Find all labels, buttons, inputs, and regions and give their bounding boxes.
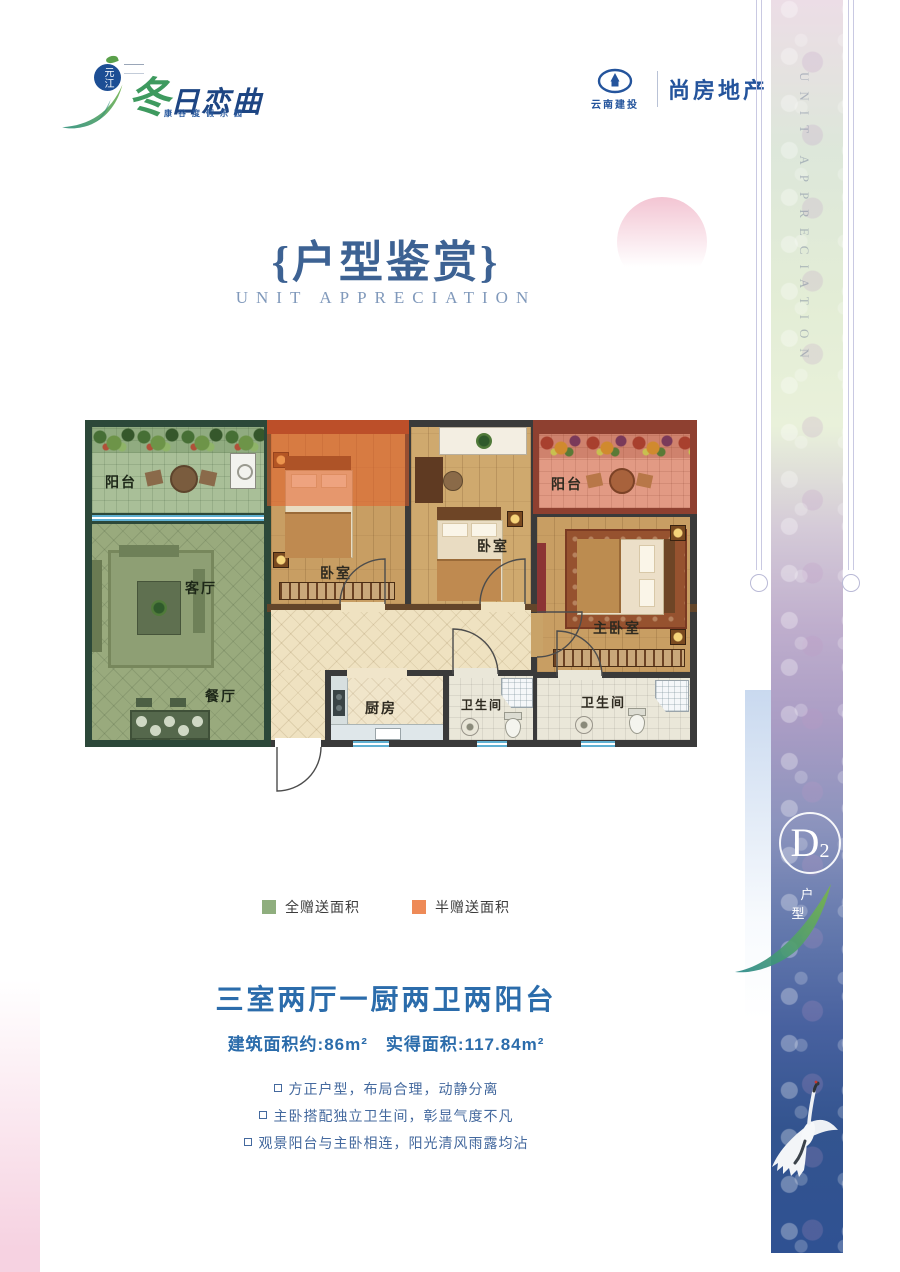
page-subtitle: UNIT APPRECIATION <box>0 288 772 308</box>
toilet <box>505 718 521 738</box>
kitchen-opening <box>347 668 407 678</box>
pink-corner-gradient <box>0 980 40 1272</box>
feature-text: 方正户型，布局合理，动静分离 <box>289 1081 499 1097</box>
lamp-icon <box>670 525 686 541</box>
logo-tagline: 康谷度假乐园 <box>164 108 248 119</box>
balcony-chair <box>145 469 164 486</box>
unit-area-line: 建筑面积约:86m² 实得面积:117.84m² <box>0 1030 772 1055</box>
bed-blanket <box>285 512 351 558</box>
room-balcony-right <box>539 434 690 508</box>
crane-icon <box>771 1078 843 1210</box>
door-opening <box>481 602 525 612</box>
bed-blanket <box>437 559 501 601</box>
label-bath2: 卫生间 <box>581 692 626 711</box>
plan-legend: 全赠送面积 半赠送面积 <box>0 897 772 917</box>
half-gift-swatch-icon <box>412 900 426 914</box>
label-kitchen: 厨房 <box>365 698 397 718</box>
sink-counter <box>331 724 443 740</box>
entry-hall <box>271 670 325 740</box>
window-kitchen <box>353 741 389 747</box>
label-bath1: 卫生间 <box>461 696 503 713</box>
dining-table <box>130 710 210 740</box>
washer <box>230 453 256 489</box>
bed-blanket <box>577 539 621 613</box>
room-living-dining <box>92 524 264 740</box>
half-gift-label: 半赠送面积 <box>435 897 510 917</box>
developer-emblem-icon <box>596 68 634 94</box>
room-bedroom2 <box>411 427 531 604</box>
wardrobe <box>553 649 685 667</box>
balcony-table <box>170 465 198 493</box>
flower-strip-icon <box>539 434 690 458</box>
burner-icon <box>336 694 342 700</box>
feature-text: 观景阳台与主卧相连，阳光清风雨露均沾 <box>259 1135 529 1151</box>
basin <box>461 718 479 736</box>
tv-cabinet <box>92 560 102 652</box>
legend-full-gift: 全赠送面积 <box>262 897 360 917</box>
shower <box>501 678 533 708</box>
full-gift-swatch-icon <box>262 900 276 914</box>
developer-emblem-block: 云南建投 <box>583 68 647 111</box>
full-gift-label: 全赠送面积 <box>285 897 360 917</box>
plate <box>164 716 175 727</box>
door-opening <box>454 668 498 678</box>
planter-strip-icon <box>92 427 264 453</box>
balcony-chair <box>636 473 653 489</box>
desk-chair <box>443 471 463 491</box>
washer-door <box>237 464 253 480</box>
dining-chair <box>136 698 152 707</box>
desk <box>415 457 443 503</box>
entry-opening <box>275 738 321 748</box>
page-title: {户型鉴赏} <box>0 226 772 290</box>
developer-org-name: 云南建投 <box>591 96 639 111</box>
living-rug <box>108 550 214 668</box>
bed-headboard <box>437 507 501 520</box>
developer-logos: 云南建投 尚房地产 <box>583 66 768 112</box>
brand-logo: 元江 冬日恋曲 康谷度假乐园 <box>72 52 262 130</box>
built-area: 建筑面积约:86m² <box>228 1030 368 1055</box>
bay-window <box>439 427 527 455</box>
burner-icon <box>336 705 342 711</box>
side-guide-dot-right <box>842 574 860 592</box>
balcony-table <box>609 468 635 494</box>
door-opening <box>531 613 543 657</box>
unit-type-label: 户型 <box>771 884 843 922</box>
window-bath2 <box>581 741 615 747</box>
unit-code-number: 2 <box>819 840 829 863</box>
floorplan-walls: 阳台 客厅 餐厅 卧室 卧室 阳台 主卧室 厨房 卫生间 卫生间 <box>85 420 697 747</box>
pillow <box>471 523 497 537</box>
feature-item: 观景阳台与主卧相连，阳光清风雨露均沾 <box>0 1130 772 1157</box>
label-balcony-left: 阳台 <box>105 472 137 492</box>
floorplan: 阳台 客厅 餐厅 卧室 卧室 阳台 主卧室 厨房 卫生间 卫生间 <box>85 420 697 795</box>
sofa <box>119 545 179 557</box>
pillow <box>639 579 655 607</box>
balcony-chair <box>586 473 603 489</box>
door-opening <box>558 670 602 680</box>
hallway <box>271 610 531 670</box>
lamp-icon <box>507 511 523 527</box>
lamp-icon <box>670 629 686 645</box>
developer-brand-name: 尚房地产 <box>668 73 768 105</box>
legend-half-gift: 半赠送面积 <box>412 897 510 917</box>
table-plant-icon <box>151 600 167 616</box>
basin <box>575 716 593 734</box>
plate <box>178 725 189 736</box>
room-master-bedroom <box>537 514 690 672</box>
half-gift-overlay <box>267 420 409 506</box>
bay-plant-icon <box>476 433 492 449</box>
toilet <box>629 714 645 734</box>
logo-divider <box>657 71 658 107</box>
square-bullet-icon <box>244 1138 252 1146</box>
feature-list: 方正户型，布局合理，动静分离 主卧搭配独立卫生间，彰显气度不凡 观景阳台与主卧相… <box>0 1076 772 1157</box>
strip-vertical-text: UNIT APPRECIATION <box>796 72 812 368</box>
window-balcony-living <box>92 515 264 521</box>
feature-text: 主卧搭配独立卫生间，彰显气度不凡 <box>274 1108 514 1124</box>
side-guide-line-right <box>848 0 854 570</box>
plate <box>150 725 161 736</box>
feature-item: 主卧搭配独立卫生间，彰显气度不凡 <box>0 1103 772 1130</box>
side-guide-line-left <box>756 0 762 570</box>
actual-area: 实得面积:117.84m² <box>386 1030 545 1055</box>
wardrobe <box>279 582 395 600</box>
plate <box>192 716 203 727</box>
label-living: 客厅 <box>185 578 217 598</box>
door-opening <box>341 602 385 612</box>
balcony-chair <box>199 469 218 486</box>
pillow <box>442 523 468 537</box>
unit-code-letter: D <box>791 823 820 863</box>
logo-area-badge: 元江 <box>94 64 121 91</box>
side-guide-dot-left <box>750 574 768 592</box>
coffee-table <box>137 581 181 635</box>
feature-item: 方正户型，布局合理，动静分离 <box>0 1076 772 1103</box>
sink <box>375 728 401 740</box>
label-balcony-right: 阳台 <box>551 474 583 494</box>
square-bullet-icon <box>259 1111 267 1119</box>
dining-chair <box>170 698 186 707</box>
window-bath1 <box>477 741 507 747</box>
label-dining: 餐厅 <box>205 686 237 706</box>
plate <box>136 716 147 727</box>
label-master: 主卧室 <box>593 618 641 638</box>
unit-layout-title: 三室两厅一厨两卫两阳台 <box>0 978 772 1018</box>
dining-chair <box>136 739 152 740</box>
dining-chair <box>170 739 186 740</box>
pillow <box>639 545 655 573</box>
shower <box>655 680 689 712</box>
stove <box>333 690 345 716</box>
label-bedroom2: 卧室 <box>477 536 509 556</box>
tv-cabinet <box>537 543 546 613</box>
unit-code-badge: D 2 <box>779 812 841 874</box>
square-bullet-icon <box>274 1084 282 1092</box>
label-bedroom1: 卧室 <box>320 563 352 583</box>
bed <box>577 539 675 613</box>
room-balcony-left <box>92 427 264 513</box>
